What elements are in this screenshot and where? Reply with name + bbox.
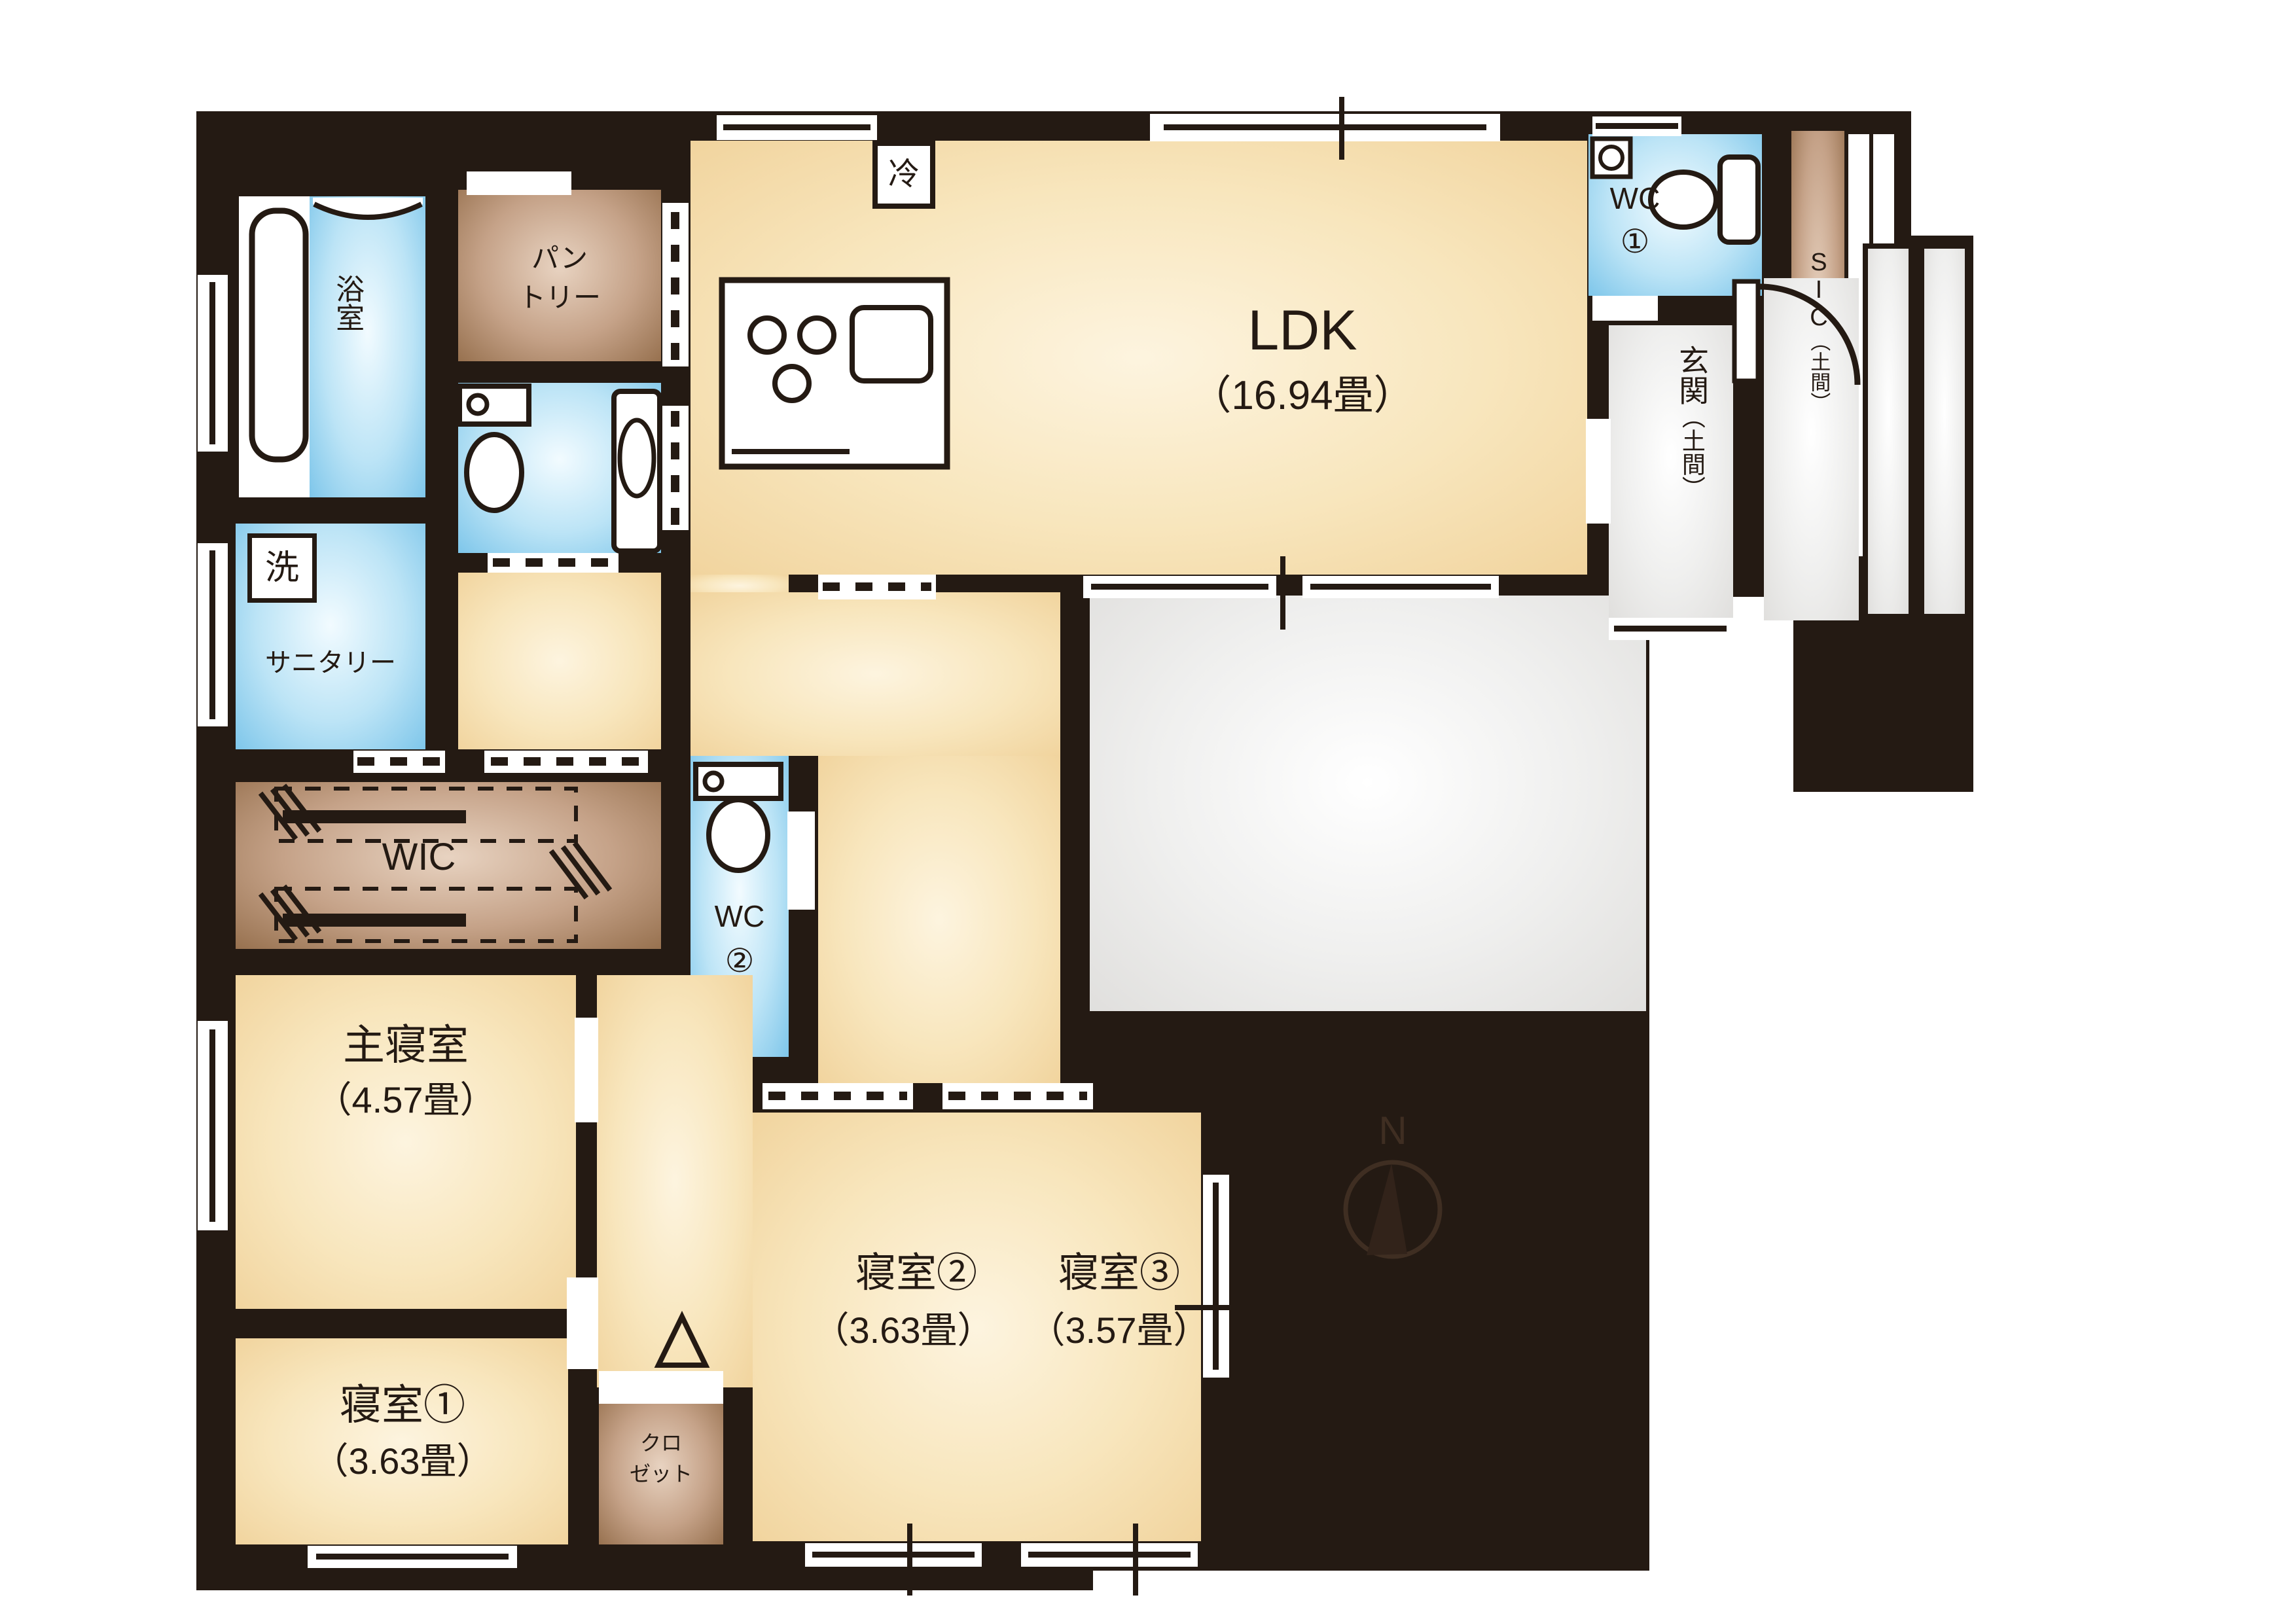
stove-burner-2 <box>800 318 834 352</box>
stove-burner-3 <box>775 366 809 401</box>
wc1-basin-bowl <box>1600 147 1623 169</box>
ldk-label: LDK <box>1106 298 1499 363</box>
step-triangle <box>658 1317 706 1365</box>
laundry-box: 洗 <box>247 533 317 603</box>
wc2-label-1: WC <box>692 898 787 935</box>
washroom-toilet-bowl <box>467 435 522 510</box>
ldk-area-label: （16.94畳） <box>1106 370 1499 422</box>
wic-hatch-right <box>551 843 610 898</box>
bath-door-notch <box>313 198 423 217</box>
compass-needle <box>1367 1164 1407 1255</box>
bedroom1-area-label: （3.63畳） <box>239 1440 566 1483</box>
stove-burner-1 <box>750 318 784 352</box>
entrance-qualifier: （土間） <box>1679 405 1704 499</box>
compass-north-label: N <box>1360 1107 1426 1153</box>
wic-label: WIC <box>321 834 517 880</box>
bath-label: 浴室 <box>326 247 368 359</box>
washroom-toilet-button <box>469 395 487 414</box>
sanitary-label: サニタリー <box>239 645 422 681</box>
pantry-label-2: トリー <box>475 280 645 315</box>
fixtures-overlay <box>0 0 2296 1623</box>
wc1-label-2: ① <box>1596 223 1674 260</box>
floor-plan: 冷 LDK （16.94畳） 浴室 パン トリー 洗 サニタリー WIC WC … <box>0 0 2296 1623</box>
closet-label-2: ゼット <box>599 1461 723 1488</box>
wic-hatch-left-bottom <box>260 886 319 940</box>
fridge-label: 冷 <box>888 158 920 191</box>
master-area-label: （4.57畳） <box>242 1079 569 1122</box>
bedroom1-label: 寝室① <box>239 1381 566 1431</box>
wc2-toilet-button <box>705 773 722 790</box>
closet-label-1: クロ <box>599 1430 723 1457</box>
master-label: 主寝室 <box>242 1021 569 1071</box>
wc1-toilet-tank <box>1720 157 1758 242</box>
sic-name: SIC <box>1805 249 1831 331</box>
kitchen-sink <box>852 308 931 381</box>
bedroom3-area-label: （3.57畳） <box>982 1309 1257 1352</box>
vanity-basin <box>620 420 654 496</box>
bedroom3-label: 寝室③ <box>982 1249 1257 1298</box>
laundry-label: 洗 <box>265 550 299 586</box>
entry-door-leaf <box>1734 281 1758 381</box>
bathtub <box>252 211 306 459</box>
wc2-label-2: ② <box>692 941 787 980</box>
sic-qualifier: （土間） <box>1808 331 1829 412</box>
sic-label: SIC（土間） <box>1795 147 1842 514</box>
fridge-box: 冷 <box>872 141 935 209</box>
pantry-label-1: パン <box>475 241 645 276</box>
wc1-label-1: WC <box>1596 181 1674 216</box>
entrance-name: 玄関 <box>1676 345 1708 405</box>
wc2-toilet-bowl <box>709 800 768 870</box>
entrance-label: 玄関（土間） <box>1649 330 1734 514</box>
